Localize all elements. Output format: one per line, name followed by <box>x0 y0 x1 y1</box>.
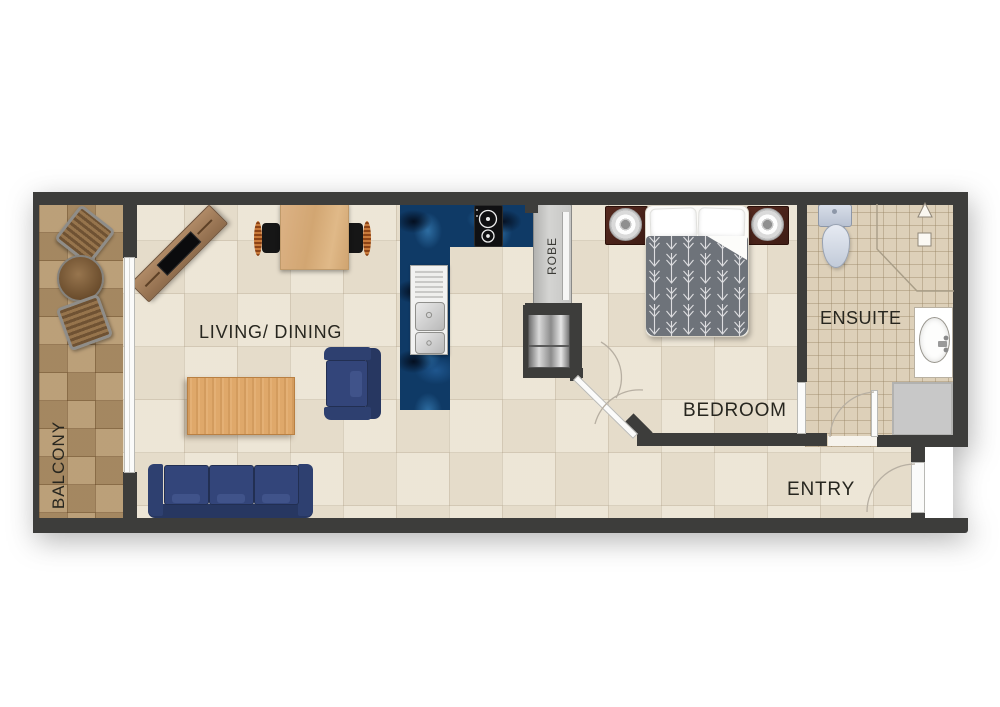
dining-table <box>280 203 349 270</box>
armchair-arm <box>324 407 371 420</box>
cooktop <box>474 205 503 247</box>
sofa-arm <box>298 464 313 516</box>
wall-kitchen-column <box>570 303 582 381</box>
wall-cap-bedroom-ensuite <box>797 382 806 434</box>
ensuite-door-threshold <box>828 436 877 446</box>
robe-sliding-door-face <box>562 212 569 300</box>
sink-drainer <box>415 270 443 298</box>
dining-chair-left-seat <box>262 223 280 253</box>
tv-shelf-line <box>197 219 213 235</box>
label-living-dining: LIVING/ DINING <box>199 322 342 343</box>
sofa-pillow <box>217 494 245 503</box>
refrigerator <box>528 314 570 368</box>
vanity <box>914 307 953 378</box>
toilet-button <box>832 209 837 214</box>
label-entry: ENTRY <box>787 479 855 501</box>
wall-right-ensuite <box>953 192 968 447</box>
label-balcony: BALCONY <box>49 421 69 509</box>
wall-robe-stub <box>525 203 538 213</box>
dining-chair-right-back <box>363 221 371 256</box>
bedside-lamp-right <box>751 208 784 241</box>
wall-balcony-partition-bottom <box>123 472 137 518</box>
label-robe: ROBE <box>545 237 559 275</box>
wall-balcony-partition-top <box>123 205 137 258</box>
sink-bowl <box>415 332 445 354</box>
wall-bottom <box>33 518 968 533</box>
tv-shelf-line <box>145 272 161 288</box>
armchair <box>322 347 381 420</box>
wall-fridge-niche-top <box>525 303 572 315</box>
label-ensuite: ENSUITE <box>820 308 902 329</box>
sliding-glass-door-balcony <box>124 257 135 473</box>
dining-chair-left-back <box>254 221 262 256</box>
sofa-arm <box>148 464 163 516</box>
sofa-pillow <box>172 494 200 503</box>
wall-bedroom-bottom <box>637 433 827 446</box>
fridge-door-split <box>529 345 569 347</box>
ensuite-door-leaf <box>871 390 878 437</box>
double-bed <box>645 205 749 337</box>
kitchen-sink-unit <box>410 265 448 355</box>
wall-top <box>33 192 968 205</box>
laundry-appliance-space <box>892 382 953 436</box>
sofa-pillow <box>262 494 290 503</box>
floorplan-image: LIVING/ DINING BEDROOM ENSUITE ENTRY BAL… <box>0 0 1000 707</box>
bedside-lamp-left <box>609 208 642 241</box>
wall-left <box>33 192 39 533</box>
duvet-sheet-fold <box>707 236 747 260</box>
coffee-table <box>187 377 295 435</box>
sofa-back <box>148 504 313 518</box>
armchair-arm <box>324 347 371 360</box>
sofa <box>148 462 313 518</box>
entry-door-leaf <box>911 462 925 513</box>
armchair-pillow <box>350 371 362 397</box>
label-bedroom: BEDROOM <box>683 400 787 422</box>
sink-bowl <box>415 302 445 331</box>
exterior-notch <box>925 447 953 518</box>
apartment-floorplan: LIVING/ DINING BEDROOM ENSUITE ENTRY BAL… <box>0 0 1000 707</box>
vanity-basin <box>919 317 950 363</box>
wall-bedroom-ensuite <box>797 205 807 382</box>
